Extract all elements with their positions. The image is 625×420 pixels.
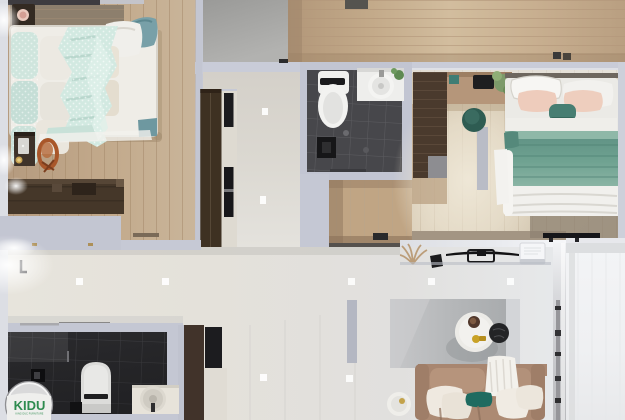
svg-text:KING DUC FURNITURE: KING DUC FURNITURE (16, 413, 44, 416)
svg-text:KIDU: KIDU (14, 398, 46, 413)
